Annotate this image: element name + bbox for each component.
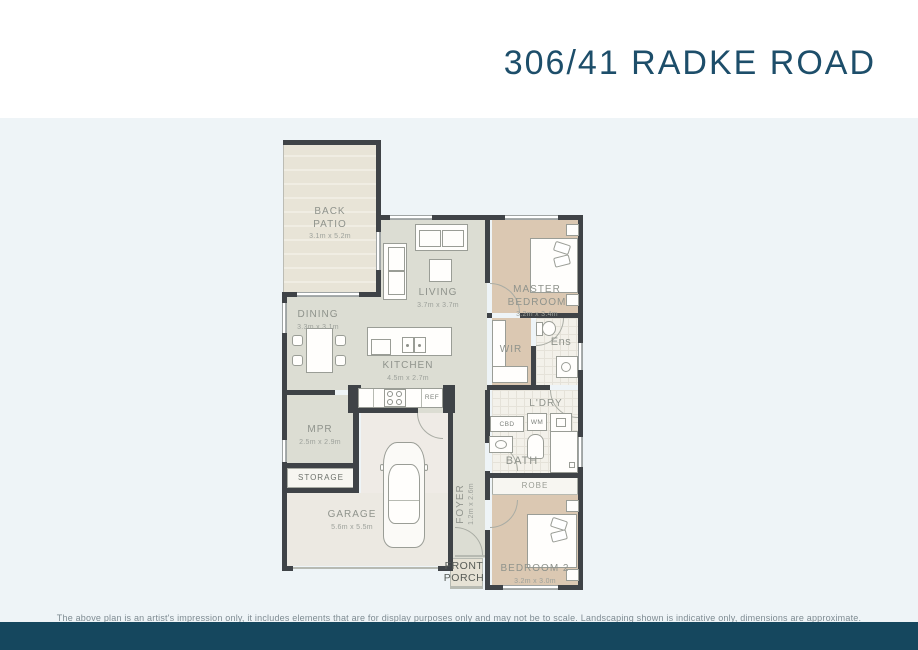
label-kitchen: KITCHEN 4.5m x 2.7m — [378, 360, 438, 383]
chair — [335, 355, 346, 366]
window — [578, 437, 583, 467]
label-living: LIVING 3.7m x 3.7m — [408, 287, 468, 310]
label-dining: DINING 3.3m x 3.1m — [288, 309, 348, 332]
bath-sink — [495, 440, 507, 449]
label-master-bedroom: MASTER BEDROOM 3.2m x 3.4m — [502, 284, 572, 320]
wall — [287, 463, 358, 468]
window — [297, 292, 359, 297]
wall — [358, 408, 418, 413]
page: 306/41 RADKE ROAD — [0, 0, 918, 650]
burner — [396, 399, 402, 405]
room-dims: 3.2m x 3.0m — [495, 578, 575, 587]
burner — [387, 399, 393, 405]
wall — [283, 140, 381, 145]
sofa-cushion — [388, 247, 405, 271]
cupboard-label: CBD — [490, 421, 524, 428]
room-name: STORAGE — [298, 473, 344, 482]
wall — [287, 390, 335, 395]
tap-dot — [406, 344, 409, 347]
burner — [387, 391, 393, 397]
car-seat-line — [389, 500, 419, 501]
window — [390, 215, 432, 220]
room-name: MPR — [307, 424, 332, 435]
front-door-line — [455, 555, 485, 557]
room-name: FRONT PORCH — [444, 560, 484, 584]
laundry-sink — [556, 418, 566, 427]
window — [282, 303, 287, 333]
window — [282, 440, 287, 462]
label-front-porch: FRONT PORCH — [438, 560, 490, 584]
wall — [578, 215, 583, 590]
room-name: BACK PATIO — [313, 206, 347, 230]
floor-plan: REF CBD WM — [0, 0, 918, 650]
label-laundry: L'DRY — [524, 398, 568, 411]
chair — [292, 355, 303, 366]
window — [578, 343, 583, 370]
room-name: LIVING — [419, 287, 458, 298]
wall — [487, 313, 492, 318]
room-dims: 5.6m x 5.5m — [322, 524, 382, 533]
robe-shelf — [492, 366, 528, 383]
room-dims: 4.5m x 2.7m — [378, 375, 438, 384]
wall — [376, 140, 381, 220]
room-name: KITCHEN — [383, 360, 434, 371]
label-garage: GARAGE 5.6m x 5.5m — [322, 509, 382, 532]
car-cabin — [388, 464, 420, 524]
label-wir: WIR — [495, 344, 527, 357]
room-name: GARAGE — [328, 509, 377, 520]
window — [376, 232, 381, 270]
toilet — [542, 321, 556, 336]
sofa-cushion — [419, 230, 441, 247]
room-name: ROBE — [522, 481, 549, 490]
wall — [487, 473, 583, 478]
room-name: DINING — [298, 309, 339, 320]
nightstand — [566, 224, 579, 236]
label-foyer: FOYER 1.2m x 2.6m — [455, 458, 477, 550]
wall — [487, 385, 550, 390]
label-bath: BATH — [502, 455, 542, 469]
bench-line — [373, 389, 374, 407]
porch-edge-line — [450, 587, 483, 589]
wall — [283, 566, 293, 571]
room-name: L'DRY — [529, 398, 562, 409]
car-mirror — [424, 464, 428, 471]
room-name: Ens — [551, 336, 571, 348]
label-bedroom2: BEDROOM 2 3.2m x 3.0m — [495, 563, 575, 586]
wall — [287, 488, 359, 493]
island-cabinet — [371, 339, 391, 355]
label-storage: STORAGE — [288, 473, 354, 483]
wall — [531, 346, 536, 385]
sofa-cushion — [388, 271, 405, 295]
label-robe: ROBE — [502, 481, 568, 491]
room-dims: 3.3m x 3.1m — [288, 324, 348, 333]
vanity-sink — [561, 362, 571, 372]
garage-door-line — [293, 567, 438, 569]
burner — [396, 391, 402, 397]
room-dims: 3.2m x 3.4m — [502, 311, 572, 320]
room-name: MASTER BEDROOM — [508, 284, 567, 308]
robe-front-line — [492, 494, 578, 495]
room-dims: 3.7m x 3.7m — [408, 302, 468, 311]
room-dims: 1.2m x 2.6m — [468, 458, 477, 550]
label-mpr: MPR 2.5m x 2.9m — [288, 424, 352, 447]
room-name: BEDROOM 2 — [500, 563, 569, 574]
tap-dot — [418, 344, 421, 347]
dining-table — [306, 328, 333, 373]
wall — [485, 220, 490, 283]
room-name: BATH — [506, 455, 539, 467]
nightstand — [566, 500, 579, 512]
wall — [443, 385, 455, 413]
shower-drain — [569, 462, 575, 468]
room-name: FOYER — [455, 484, 466, 523]
fridge-label: REF — [421, 394, 443, 401]
footer-bar — [0, 622, 918, 650]
chair — [292, 335, 303, 346]
room-dims: 2.5m x 2.9m — [288, 439, 352, 448]
wall — [448, 413, 453, 566]
label-back-patio: BACK PATIO 3.1m x 5.2m — [300, 206, 360, 242]
car-mirror — [380, 464, 384, 471]
sofa-cushion — [442, 230, 464, 247]
coffee-table — [429, 259, 452, 282]
chair — [335, 335, 346, 346]
label-ensuite: Ens — [546, 336, 576, 350]
washing-machine-label: WM — [527, 419, 547, 426]
room-dims: 3.1m x 5.2m — [300, 233, 360, 242]
room-name: WIR — [500, 344, 522, 355]
window — [505, 215, 558, 220]
wall — [282, 292, 287, 571]
